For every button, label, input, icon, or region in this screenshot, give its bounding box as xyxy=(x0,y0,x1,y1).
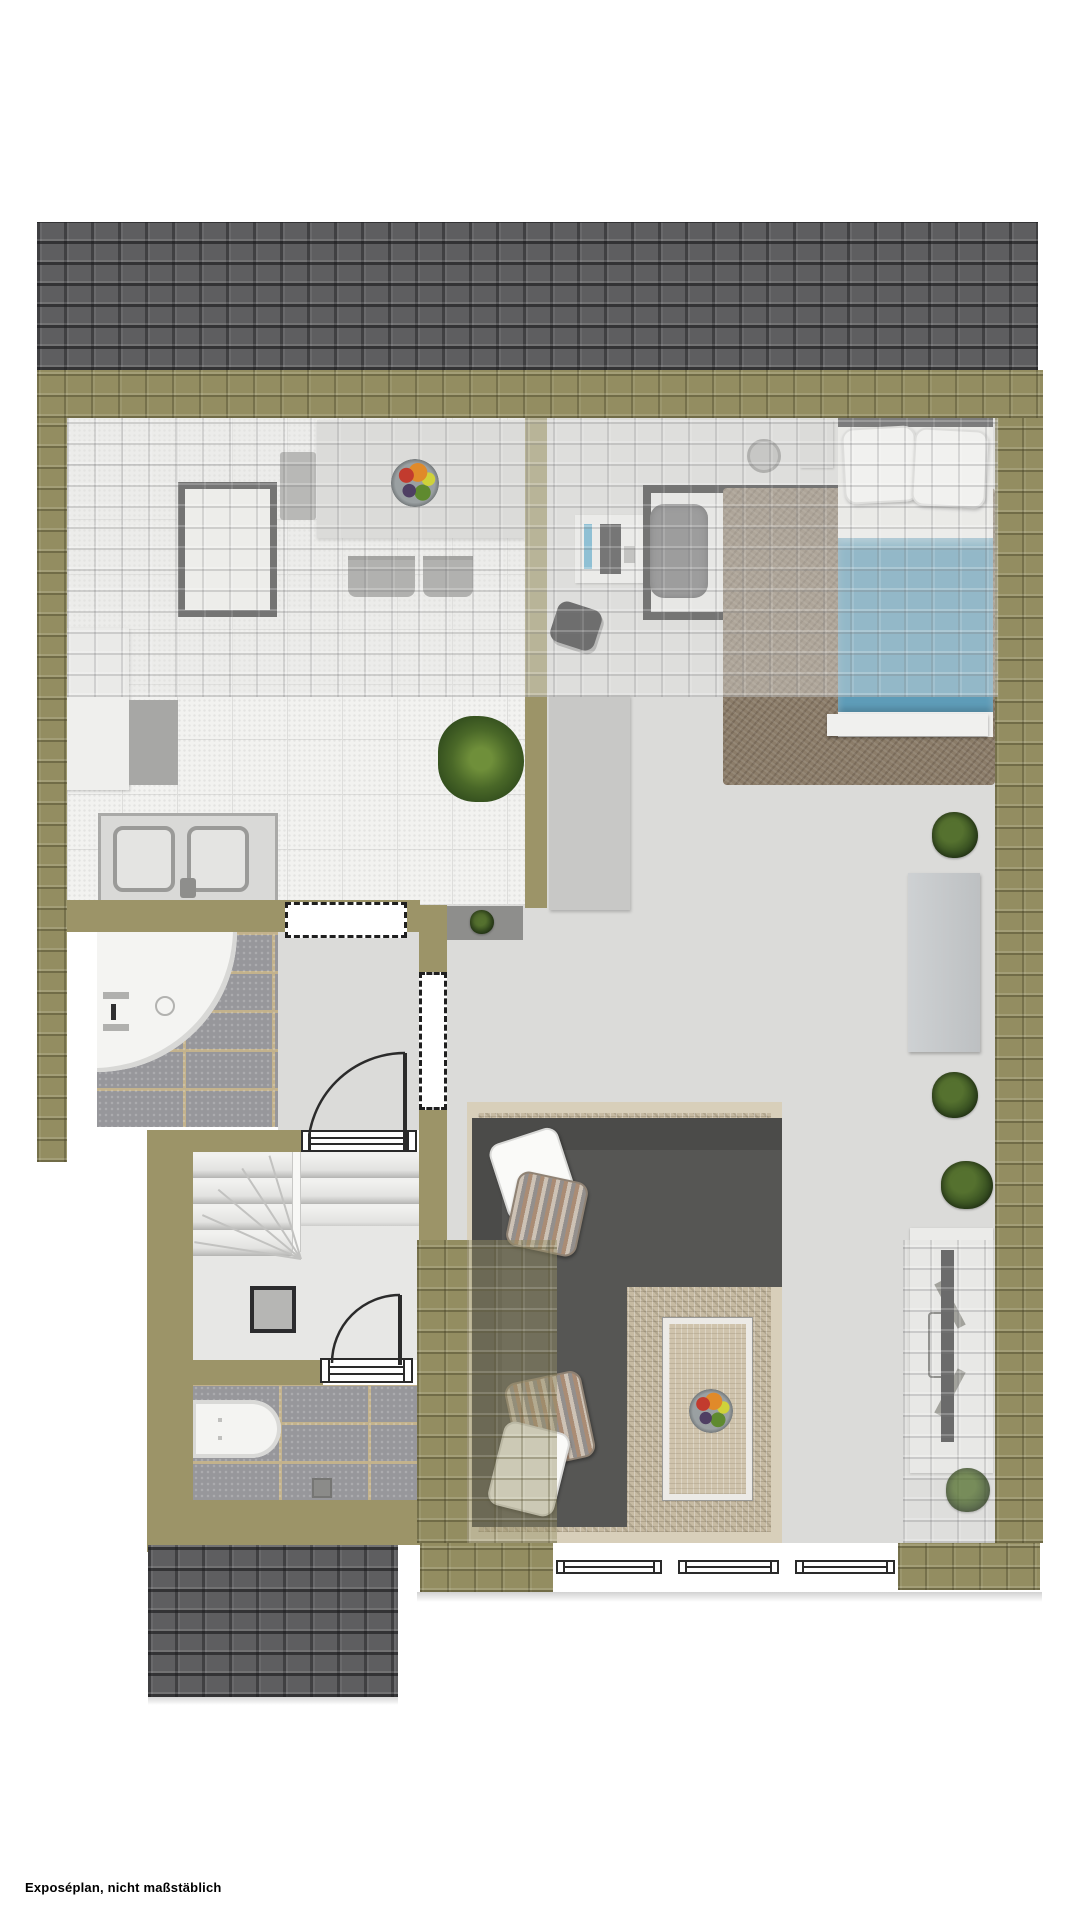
door-swing xyxy=(308,1046,408,1154)
kitchen-sink xyxy=(98,813,278,905)
plan-shadow xyxy=(148,1697,398,1705)
window xyxy=(792,1543,898,1592)
fruit-bowl xyxy=(391,459,439,507)
kitchen-counter-gray xyxy=(129,700,178,785)
caption: Exposéplan, nicht maßstäblich xyxy=(25,1880,222,1895)
wall-stairs-north xyxy=(147,1130,303,1152)
wall-stairs-west xyxy=(147,1152,193,1552)
roof-overlay-top xyxy=(67,418,998,697)
wall-tub-south xyxy=(147,1500,420,1545)
wall-south-left xyxy=(420,1543,553,1592)
kitchen-plant xyxy=(438,716,524,802)
wall-left-eave xyxy=(37,418,67,1162)
window xyxy=(553,1543,665,1592)
roof-eave-band xyxy=(37,370,1043,418)
wall-opening xyxy=(419,972,447,1110)
potted-plant xyxy=(941,1161,993,1209)
shower-mixer xyxy=(111,1004,116,1020)
floor-drain xyxy=(312,1478,332,1498)
stairs-upper-right-flight xyxy=(301,1152,420,1226)
roof-overlay-bottom-left xyxy=(467,1240,557,1543)
potted-plant xyxy=(932,812,978,858)
sideboard xyxy=(908,873,980,1052)
roof-overlay-left-strip xyxy=(417,1240,467,1543)
potted-plant xyxy=(946,1468,990,1512)
plan-shadow xyxy=(417,1592,1042,1602)
sink-basin xyxy=(187,826,249,892)
roof-top xyxy=(37,222,1038,370)
wall-stairs-tub xyxy=(193,1360,323,1385)
door-swing xyxy=(325,1293,405,1367)
tub-jet xyxy=(218,1418,222,1422)
kitchen-pass-through-window xyxy=(285,902,407,938)
stair-opening xyxy=(250,1286,296,1333)
gray-runner-rug xyxy=(549,695,630,910)
roof-bottom-left xyxy=(148,1545,398,1697)
sink-faucet xyxy=(180,878,196,898)
potted-plant xyxy=(932,1072,978,1118)
doormat-plant xyxy=(470,910,494,934)
bed-footboard-bench xyxy=(827,714,988,736)
sink-basin xyxy=(113,826,175,892)
shower-drain xyxy=(155,996,175,1016)
window xyxy=(675,1543,782,1592)
shower-faucet xyxy=(103,1024,129,1031)
wall-right-eave xyxy=(995,418,1043,1543)
tub-jet xyxy=(218,1436,222,1440)
floor-plan: Exposéplan, nicht maßstäblich xyxy=(0,0,1080,1920)
bathtub xyxy=(192,1400,281,1458)
fruit-bowl xyxy=(689,1389,733,1433)
shower-faucet xyxy=(103,992,129,999)
wall-south-right xyxy=(898,1543,1040,1590)
